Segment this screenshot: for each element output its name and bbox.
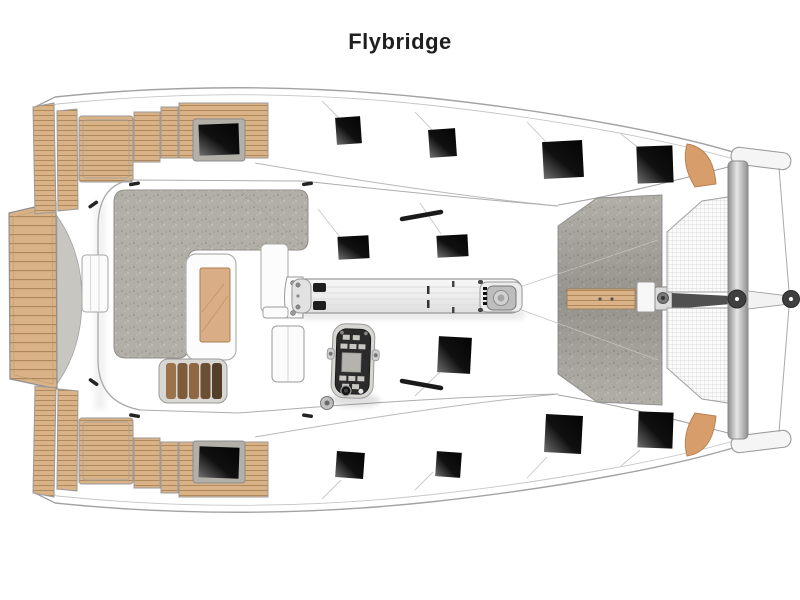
teak-panel xyxy=(134,438,160,488)
hull-window xyxy=(198,123,239,155)
boom-tick xyxy=(427,300,430,308)
mast-center xyxy=(498,295,505,302)
deck-plan-page: Flybridge xyxy=(0,0,800,600)
bench-slat xyxy=(178,363,188,399)
deck-hatch xyxy=(337,235,369,260)
crossbeam-bowsprit xyxy=(728,146,800,453)
boom-end-cap xyxy=(292,279,311,313)
furler-pin xyxy=(735,297,739,301)
anchor-fitting-base xyxy=(637,282,655,312)
teak-panel xyxy=(134,112,160,162)
deck-hatch xyxy=(335,451,365,479)
mast-tooth xyxy=(483,302,487,305)
deck-hatch xyxy=(544,414,583,454)
console-button xyxy=(349,344,356,349)
bench-slat xyxy=(201,363,211,399)
console-display xyxy=(342,353,362,373)
console-button xyxy=(343,335,350,340)
bolt xyxy=(296,283,300,287)
boarding-steps xyxy=(82,255,108,312)
seat-arm xyxy=(263,307,288,318)
mast-tooth xyxy=(483,297,487,300)
bolt xyxy=(296,305,300,309)
boom-tick xyxy=(427,286,430,294)
bench-slat xyxy=(166,363,176,399)
flybridge-table xyxy=(200,268,230,342)
teak-panel xyxy=(161,442,178,493)
bolt xyxy=(296,294,299,297)
stern-platform-teak xyxy=(9,202,57,389)
windlass-center xyxy=(661,296,665,300)
console-button xyxy=(358,344,365,349)
teak-panel xyxy=(161,107,178,158)
deck-hatch xyxy=(435,451,462,478)
winch-center xyxy=(325,401,330,406)
bench-slat xyxy=(189,363,199,399)
furler-pin xyxy=(789,297,793,301)
boom-clamp xyxy=(313,283,326,292)
deck-hatch xyxy=(428,128,457,158)
deck-hatch xyxy=(436,234,468,258)
teak-strip xyxy=(33,386,56,497)
teak-panel xyxy=(79,116,133,182)
console-button xyxy=(352,384,359,389)
mast-tooth xyxy=(483,292,487,295)
console-button xyxy=(357,376,364,381)
console-button xyxy=(348,376,355,381)
deck-plan-canvas: Flybridge xyxy=(0,0,800,600)
console-button xyxy=(353,335,360,340)
bench-slat xyxy=(212,363,222,399)
teak-strip xyxy=(57,389,78,491)
screw xyxy=(610,297,613,300)
boom-clamp xyxy=(313,301,326,310)
boom-nub xyxy=(478,280,483,284)
teak-strip xyxy=(57,109,78,211)
mast-tooth xyxy=(483,287,487,290)
deck-hatch xyxy=(636,145,673,183)
deck-hatch xyxy=(637,411,673,448)
boom-tick xyxy=(452,307,455,313)
hull-window xyxy=(198,446,239,478)
boom-tick xyxy=(452,281,455,287)
plan-title: Flybridge xyxy=(348,29,452,54)
boom-nub xyxy=(478,308,483,312)
helm-seat-cabinet xyxy=(261,244,288,312)
deck-hatch xyxy=(437,336,472,374)
console-button xyxy=(340,344,347,349)
teak-strip xyxy=(33,103,56,214)
screw xyxy=(598,297,601,300)
deck-hatch xyxy=(542,140,584,179)
console-button xyxy=(339,376,346,381)
deck-hatch xyxy=(335,116,362,145)
teak-panel xyxy=(79,418,133,484)
